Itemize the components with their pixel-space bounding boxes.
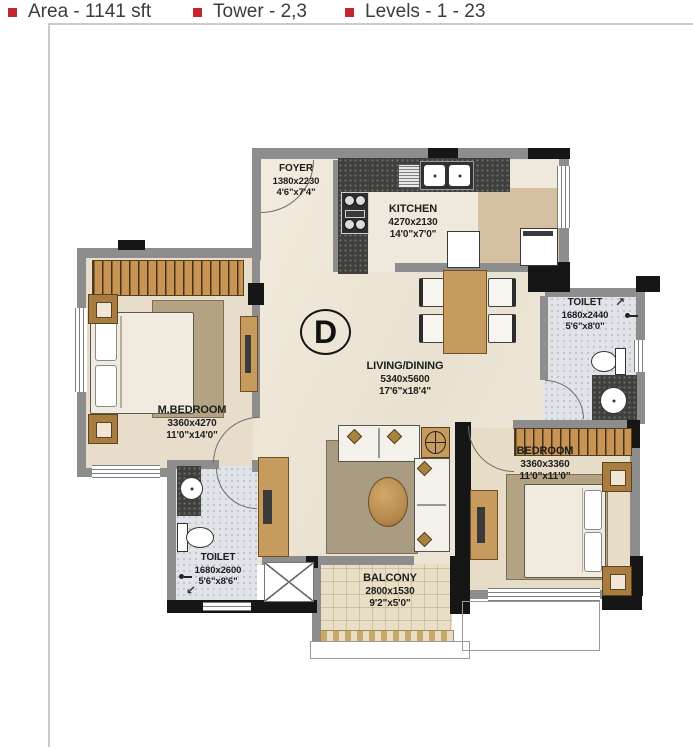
planter-icon [425,431,446,454]
bed-sheet-line [582,488,584,572]
wc-bowl [591,351,617,372]
washbasin [180,477,203,500]
room-name: BALCONY [328,572,452,586]
room-dim-ft: 5'6"x8'6" [176,576,260,588]
burner-icon [344,219,355,230]
sink-basin [423,164,446,187]
room-dim-ft: 5'6"x8'0" [544,321,626,333]
drain-dot [458,174,461,177]
wall-mbedroom-top [77,248,261,258]
drainboard [398,164,420,188]
drain-dot [612,399,615,402]
room-name: BEDROOM [493,445,597,459]
wall-black-toilet-top-corner [636,276,660,292]
wardrobe-mbedroom [92,260,244,296]
dresser-detail [477,507,485,543]
unit-letter: D [314,314,337,351]
double-bed-bedroom [524,484,606,578]
room-dim-mm: 2800x1530 [328,586,452,599]
page: { "header": { "items": [ {"label": "Area… [0,0,693,747]
shower-icon [625,312,639,320]
room-name: TOILET [176,552,260,565]
bedroom-label: BEDROOM 3360x3360 11'0"x11'0" [493,445,597,484]
nightstand-top-detail [610,574,626,590]
room-name: TOILET [544,297,626,310]
room-name: M.BEDROOM [134,404,250,418]
nightstand [602,462,632,492]
tv-unit-mbedroom [240,316,258,392]
wall-black-living-bedroom-divider [455,422,471,560]
nightstand [602,566,632,596]
dining-table [443,270,487,354]
room-dim-mm: 3360x3360 [493,459,597,472]
window-bedroom-bottom [488,588,600,601]
wc-bowl [186,527,214,548]
pillow [95,319,117,361]
room-dim-ft: 4'6"x7'4" [257,187,335,199]
room-dim-mm: 1380x2230 [257,176,335,188]
dining-chair [488,278,516,307]
sofa-two-seater [338,425,420,462]
wall-black-mbedroom-top [118,240,145,250]
wc-tank [615,348,626,375]
dining-chair [488,314,516,343]
toilet-bottom-label: TOILET 1680x2600 5'6"x8'6" [176,552,260,588]
kitchen-sink [420,161,474,190]
wall-black-kitchen-corner [528,262,570,292]
room-dim-ft: 9'2"x5'0" [328,598,452,611]
nightstand-top-detail [96,302,112,318]
toilet-top-label: TOILET 1680x2440 5'6"x8'0" [544,297,626,333]
washer-control-panel [523,231,553,236]
nightstand [88,414,118,444]
pillow [95,365,117,407]
window-mbedroom-bottom [92,465,160,478]
nightstand-top-detail [96,422,112,438]
washbasin [600,387,627,414]
sofa-cushion-divider [417,504,446,506]
drain-dot [190,487,193,490]
window-toilet-bottom-vent [203,602,251,611]
wall-black-top-2 [528,148,570,159]
kitchen-label: KITCHEN 4270x2130 14'0"x7'0" [363,203,463,242]
window-toilet-top-vent [634,340,646,372]
washing-machine [520,228,558,266]
burner-icon [344,195,355,206]
dresser-bedroom [470,490,498,560]
stove-center-bar [345,210,365,218]
room-dim-mm: 1680x2600 [176,565,260,577]
window-kitchen-right [557,166,570,228]
room-dim-ft: 11'0"x14'0" [134,430,250,443]
unit-letter-badge: D [300,309,351,355]
double-bed-mbedroom [90,312,194,414]
bedroom-window-projection [462,601,600,651]
shower-arm [630,315,638,317]
sink-basin [448,164,471,187]
room-dim-ft: 14'0"x7'0" [363,229,463,242]
floor-plan: ↗ ↙ D FOYER 1380x2230 4'6"x7'4" KITCHEN [0,0,693,747]
room-dim-mm: 3360x4270 [134,418,250,431]
storage-cabinet [258,457,289,557]
room-name: LIVING/DINING [353,360,457,374]
room-dim-ft: 11'0"x11'0" [493,471,597,484]
room-name: FOYER [257,163,335,176]
sofa-cushion-divider [378,428,380,458]
nightstand [88,294,118,324]
coffee-table [368,477,408,527]
living-dining-label: LIVING/DINING 5340x5600 17'6"x18'4" [353,360,457,399]
window-mbedroom-left [75,308,87,392]
drain-dot [433,174,436,177]
room-dim-mm: 1680x2440 [544,310,626,322]
room-dim-mm: 4270x2130 [363,217,463,230]
service-shaft [264,562,314,602]
balcony-railing [310,641,470,659]
cabinet-handle [263,490,272,524]
room-dim-mm: 5340x5600 [353,374,457,387]
nightstand-top-detail [610,470,626,486]
balcony-label: BALCONY 2800x1530 9'2"x5'0" [328,572,452,611]
pillow [584,490,602,530]
foyer-label: FOYER 1380x2230 4'6"x7'4" [257,163,335,199]
side-table [421,427,450,458]
mbedroom-label: M.BEDROOM 3360x4270 11'0"x14'0" [134,404,250,443]
bed-sheet-line [120,316,122,408]
wall-toilet-bottom-left [167,460,176,606]
tv-screen [245,335,251,373]
room-name: KITCHEN [363,203,463,217]
wall-black-mbedroom-right [248,283,264,305]
room-dim-ft: 17'6"x18'4" [353,386,457,399]
pillow [584,532,602,572]
